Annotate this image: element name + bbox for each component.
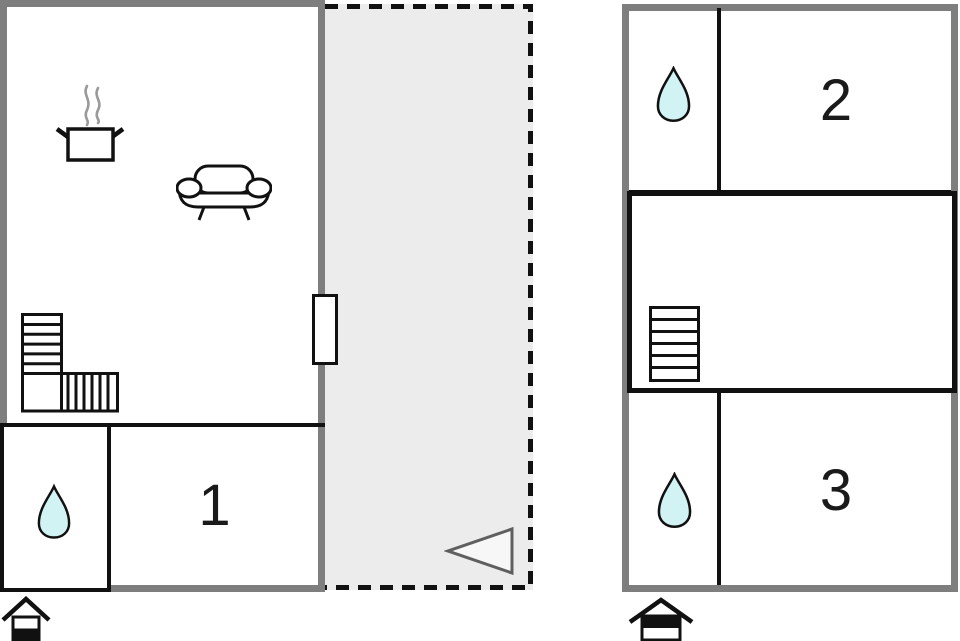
sofa-icon <box>176 164 272 222</box>
terrace-dashed-border <box>325 4 533 590</box>
landing-room <box>627 191 957 393</box>
room-3: 3 <box>721 397 951 585</box>
room-1: 1 <box>111 427 318 585</box>
direction-arrow-icon <box>444 526 518 578</box>
house-lower-level-icon <box>1 596 51 641</box>
room-2-label: 2 <box>820 72 852 130</box>
water-drop-icon <box>656 66 691 123</box>
terrace-area <box>325 4 533 590</box>
stairs-icon <box>20 312 120 414</box>
floor-plan-canvas: 1 2 3 <box>0 0 960 641</box>
bathroom-ground <box>0 423 111 592</box>
room-1-label: 1 <box>198 477 230 535</box>
water-drop-icon <box>657 472 692 529</box>
door <box>312 294 338 365</box>
room-2: 2 <box>721 11 951 190</box>
stairs-icon <box>648 305 701 385</box>
pot-steam-icon <box>55 82 125 164</box>
water-drop-icon <box>37 483 71 541</box>
room-3-label: 3 <box>820 462 852 520</box>
house-upper-level-icon <box>627 597 695 641</box>
